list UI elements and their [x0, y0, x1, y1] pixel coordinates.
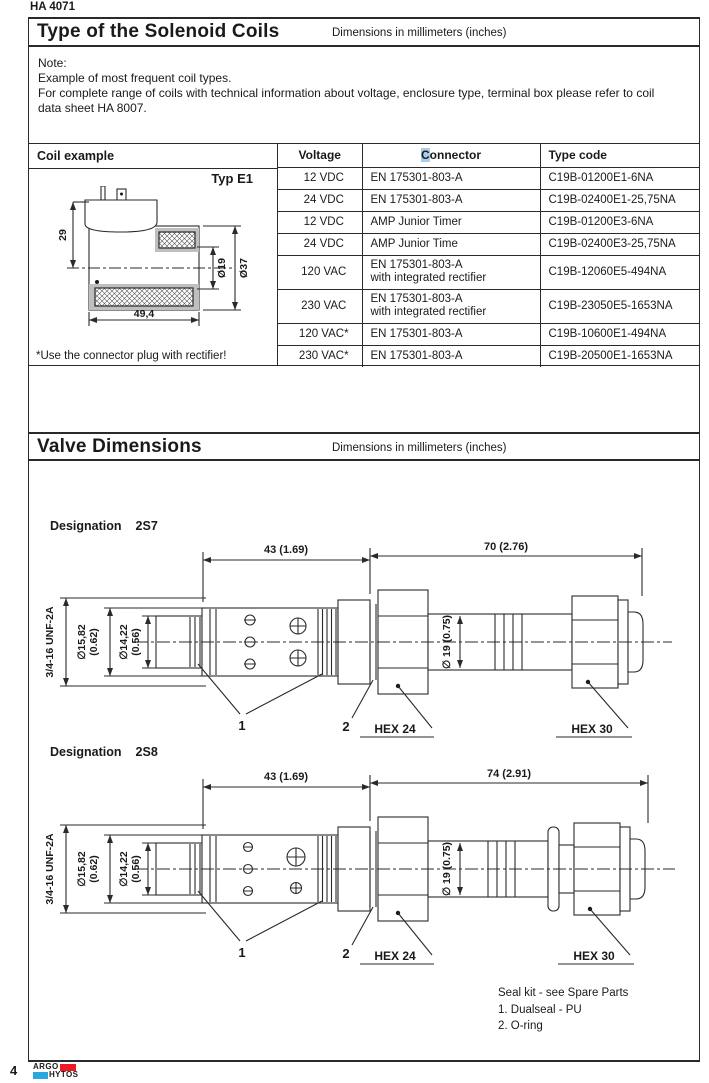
coil-dim-length: 49,4 [134, 308, 155, 320]
dia2-mm: ∅14,22 [118, 851, 130, 887]
col-header-voltage: Voltage [278, 144, 362, 167]
dia2-in: (0.56) [130, 628, 142, 655]
coil-section: Coil example Typ E1 [29, 143, 699, 366]
dim-total-length: 74 (2.91) [487, 768, 531, 780]
coil-dim-inner: Ø19 [216, 258, 228, 278]
callout-2: 2 [342, 946, 349, 961]
coils-section-titlebar: Type of the Solenoid Coils Dimensions in… [29, 19, 699, 47]
note-line: For complete range of coils with technic… [38, 86, 693, 101]
coil-dim-height: 29 [57, 229, 69, 241]
valve-drawing-2s8: 43 (1.69) 74 (2.91) 3/4-16 UNF-2A ∅15,82… [40, 767, 690, 967]
units-note: Dimensions in millimeters (inches) [332, 442, 506, 454]
argo-hytos-logo: ARGO HYTOS [33, 1063, 78, 1079]
dim-front-length: 43 (1.69) [264, 544, 308, 556]
table-row: 120 VAC EN 175301-803-Awith integrated r… [278, 255, 699, 289]
hex24-label: HEX 24 [374, 722, 416, 736]
designation-2s8: Designation2S8 [50, 745, 158, 759]
valves-section-titlebar: Valve Dimensions Dimensions in millimete… [29, 432, 699, 461]
coils-section-title: Type of the Solenoid Coils [37, 21, 279, 43]
page-frame: Type of the Solenoid Coils Dimensions in… [28, 17, 700, 1062]
table-row: 120 VAC* EN 175301-803-A C19B-10600E1-49… [278, 323, 699, 345]
table-row: 12 VDC EN 175301-803-A C19B-01200E1-6NA [278, 167, 699, 189]
coil-example-box: Coil example Typ E1 [29, 144, 278, 365]
hex24-label: HEX 24 [374, 949, 416, 963]
dia-body: ∅ 19 (0.75) [441, 842, 453, 896]
dim-front-length: 43 (1.69) [264, 771, 308, 783]
valves-section-title: Valve Dimensions [37, 436, 202, 458]
seal-kit-note: Seal kit - see Spare Parts 1. Dualseal -… [498, 985, 628, 1035]
table-row: 12 VDC AMP Junior Timer C19B-01200E3-6NA [278, 211, 699, 233]
note-line: Note: [38, 56, 693, 71]
callout-1: 1 [238, 718, 245, 733]
logo-blue-block [33, 1072, 48, 1079]
callout-1: 1 [238, 945, 245, 960]
dia1-mm: ∅15,82 [76, 624, 88, 660]
coil-type-label: Typ E1 [211, 171, 253, 186]
note-line: Example of most frequent coil types. [38, 71, 693, 86]
table-row: 230 VAC* EN 175301-803-A C19B-20500E1-16… [278, 345, 699, 367]
coil-dim-outer: Ø37 [238, 258, 250, 278]
callout-2: 2 [342, 719, 349, 734]
note-block: Note: Example of most frequent coil type… [38, 56, 693, 116]
dia1-mm: ∅15,82 [76, 851, 88, 887]
note-line: data sheet HA 8007. [38, 101, 693, 116]
table-row: 24 VDC AMP Junior Time C19B-02400E3-25,7… [278, 233, 699, 255]
hex30-label: HEX 30 [571, 722, 613, 736]
dia2-in: (0.56) [130, 855, 142, 882]
coil-drawing: 29 Ø19 Ø37 49,4 [37, 186, 269, 336]
highlighted-letter: C [421, 148, 430, 162]
table-row: 230 VAC EN 175301-803-Awith integrated r… [278, 289, 699, 323]
thread-label: 3/4-16 UNF-2A [44, 606, 56, 678]
dia-body: ∅ 19 (0.75) [441, 615, 453, 669]
table-row: 24 VDC EN 175301-803-A C19B-02400E1-25,7… [278, 189, 699, 211]
doc-code: HA 4071 [30, 1, 75, 13]
dia1-in: (0.62) [88, 628, 100, 655]
thread-label: 3/4-16 UNF-2A [44, 833, 56, 905]
logo-text-hytos: HYTOS [49, 1071, 78, 1079]
col-header-connector: Connector [362, 144, 540, 167]
page-number: 4 [10, 1063, 17, 1078]
coil-footnote: *Use the connector plug with rectifier! [36, 350, 226, 362]
designation-2s7: Designation2S7 [50, 519, 158, 533]
hex30-label: HEX 30 [573, 949, 615, 963]
dim-total-length: 70 (2.76) [484, 541, 528, 553]
units-note: Dimensions in millimeters (inches) [332, 27, 506, 39]
dia1-in: (0.62) [88, 855, 100, 882]
coil-example-header: Coil example [29, 144, 277, 169]
col-header-typecode: Type code [540, 144, 699, 167]
coil-table: Voltage Connector Type code 12 VDC EN 17… [278, 144, 699, 367]
dia2-mm: ∅14,22 [118, 624, 130, 660]
valve-drawing-2s7: 43 (1.69) 70 (2.76) 3/4-16 UNF-2A ∅15,82… [40, 540, 690, 740]
